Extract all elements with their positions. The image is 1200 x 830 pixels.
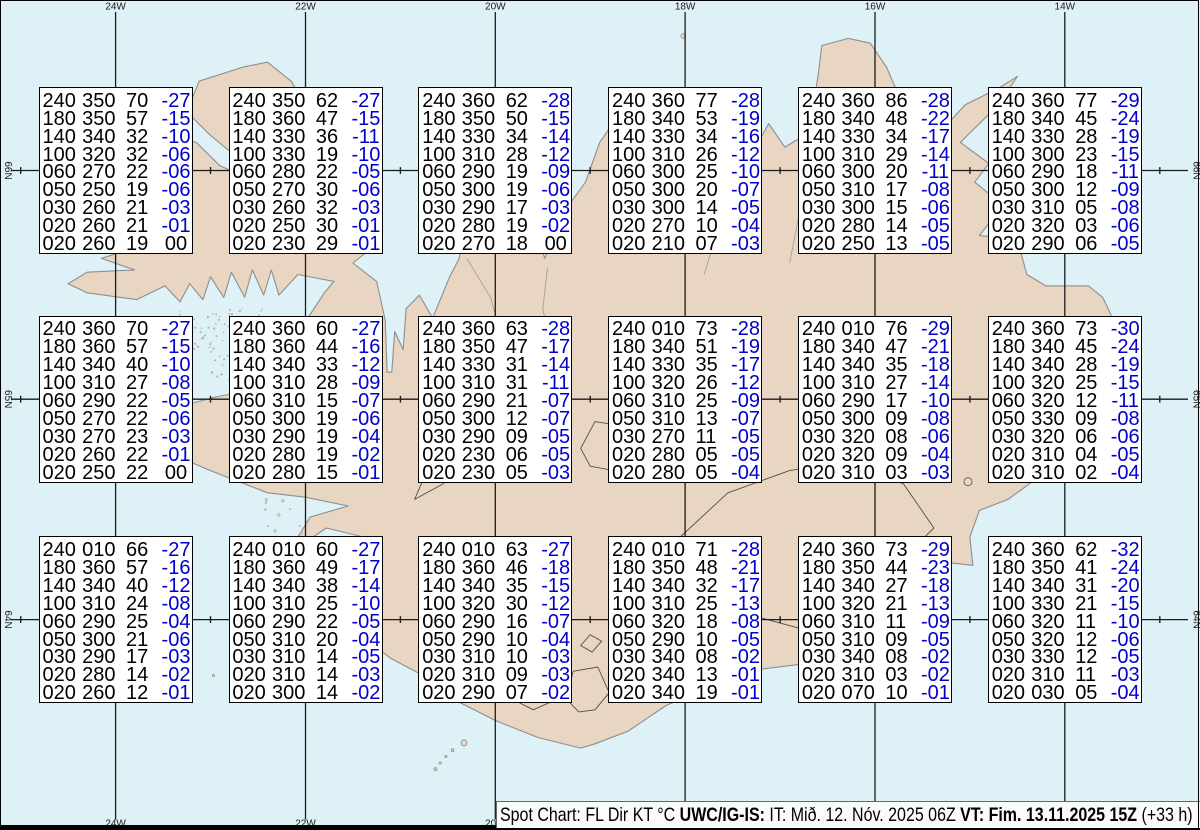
svg-text:18W: 18W (675, 2, 696, 13)
svg-text:20W: 20W (485, 2, 506, 13)
svg-text:65N: 65N (2, 390, 13, 408)
svg-text:64N: 64N (2, 610, 13, 628)
svg-text:24W: 24W (105, 2, 126, 13)
svg-text:16W: 16W (865, 2, 886, 13)
svg-text:66N: 66N (2, 161, 13, 179)
svg-text:22W: 22W (295, 2, 316, 13)
svg-text:14W: 14W (1055, 2, 1076, 13)
